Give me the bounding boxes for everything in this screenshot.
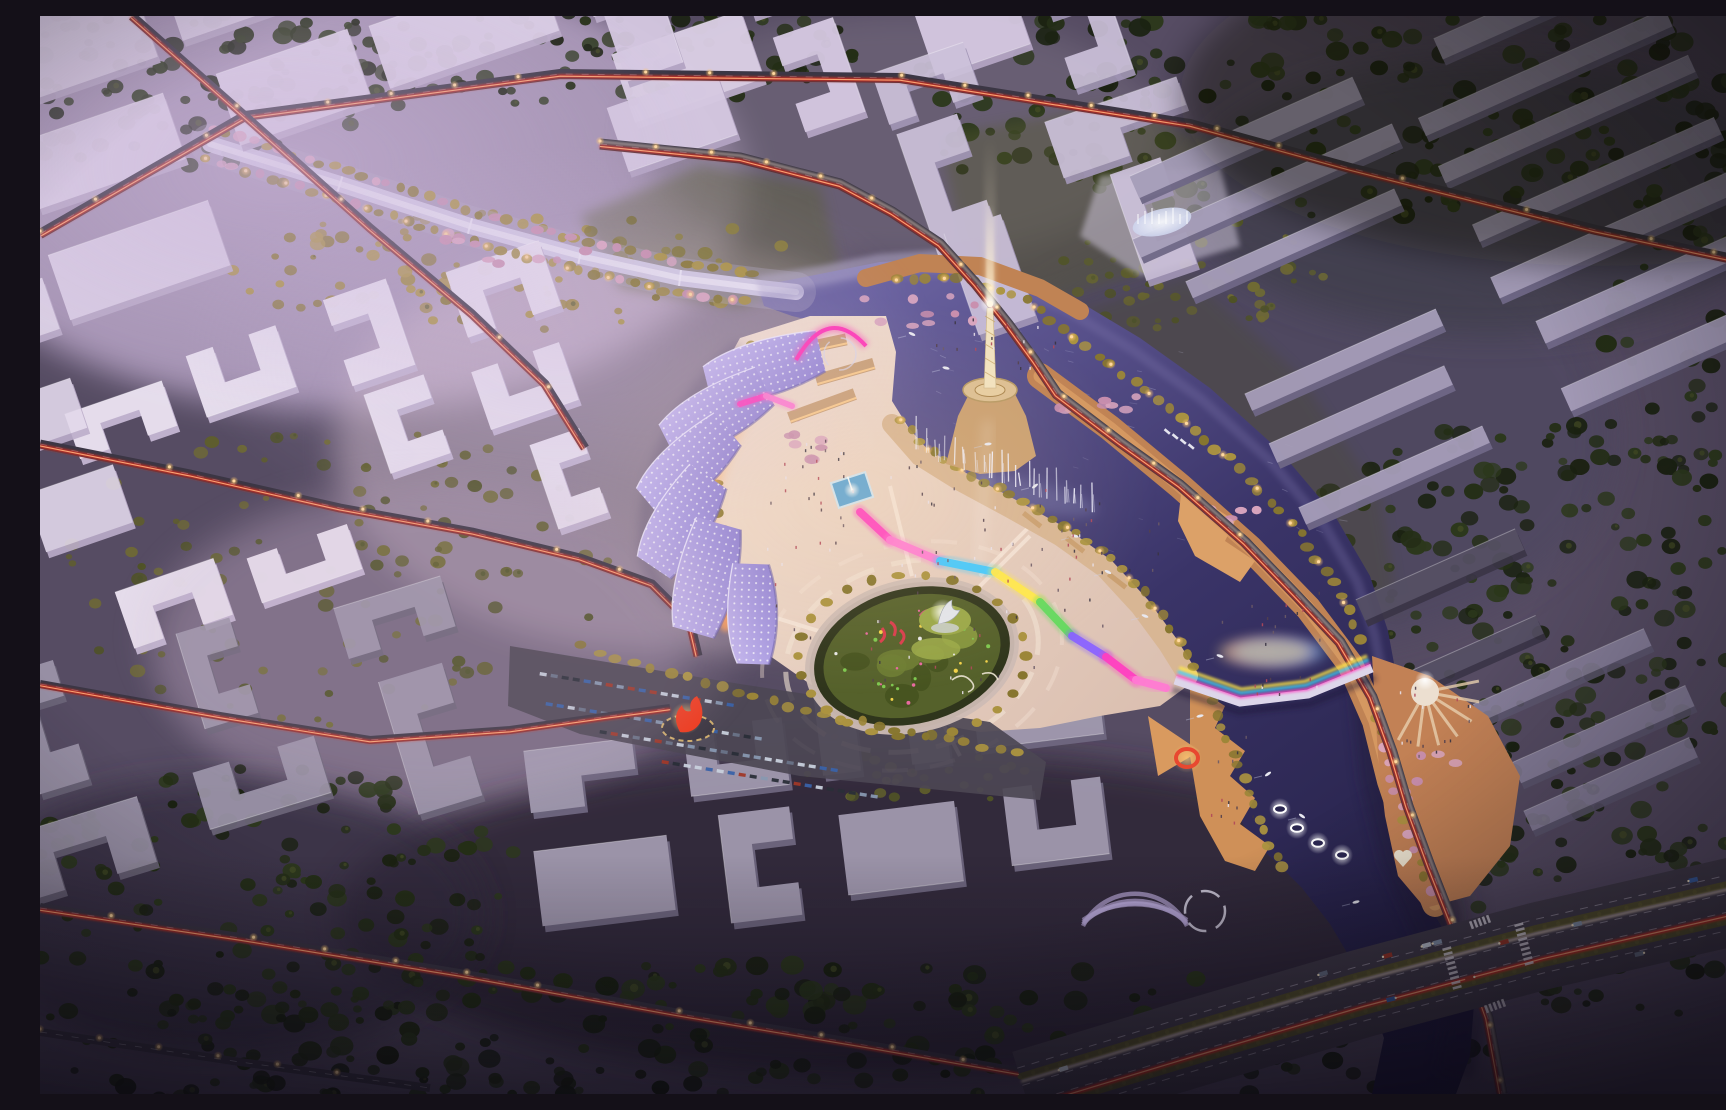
aerial-rendering: Aerial dusk rendering of a riverside cul… bbox=[40, 16, 1726, 1094]
atmosphere-layer bbox=[40, 16, 1726, 1094]
